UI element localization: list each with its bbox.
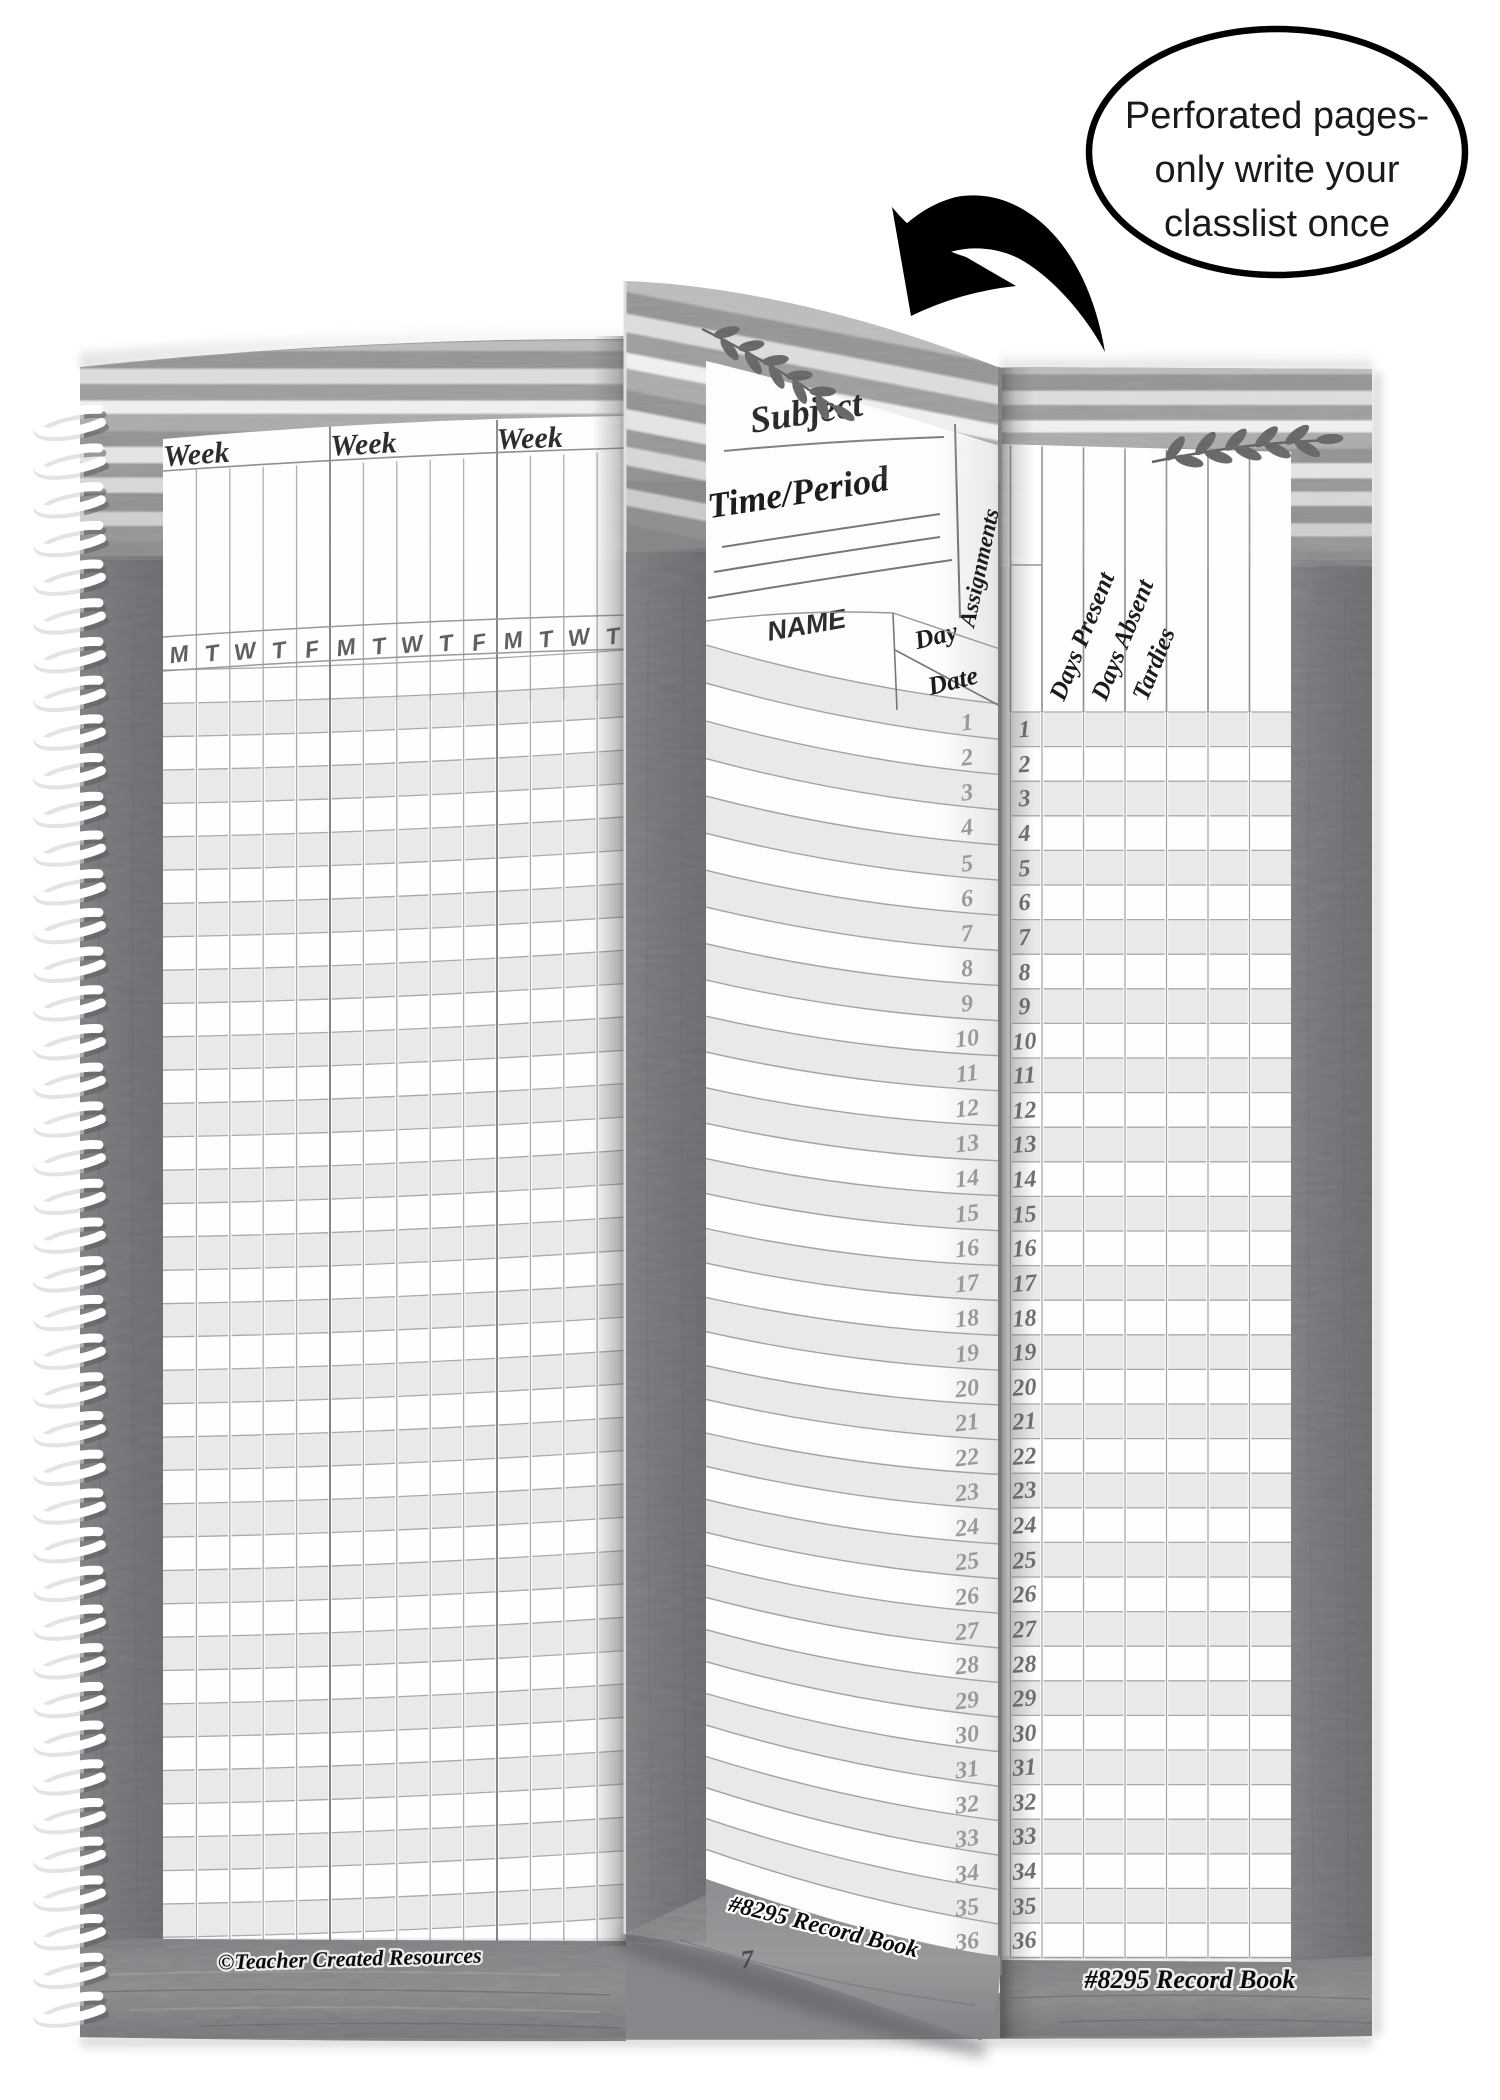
svg-text:20: 20 bbox=[953, 1375, 981, 1404]
svg-text:27: 27 bbox=[953, 1618, 982, 1647]
svg-text:33: 33 bbox=[953, 1825, 981, 1854]
svg-text:16: 16 bbox=[954, 1235, 981, 1264]
svg-text:25: 25 bbox=[953, 1548, 981, 1577]
svg-text:21: 21 bbox=[953, 1409, 981, 1438]
svg-text:29: 29 bbox=[953, 1687, 981, 1716]
svg-text:24: 24 bbox=[953, 1514, 981, 1543]
svg-text:23: 23 bbox=[953, 1479, 981, 1508]
svg-text:26: 26 bbox=[953, 1583, 981, 1612]
svg-text:17: 17 bbox=[954, 1270, 982, 1299]
svg-text:classlist once: classlist once bbox=[1164, 203, 1390, 245]
svg-text:10: 10 bbox=[954, 1025, 981, 1054]
svg-text:19: 19 bbox=[954, 1340, 981, 1369]
svg-text:12: 12 bbox=[954, 1095, 981, 1124]
svg-text:Perforated pages-: Perforated pages- bbox=[1125, 95, 1429, 137]
svg-text:28: 28 bbox=[953, 1652, 981, 1681]
svg-text:35: 35 bbox=[953, 1894, 981, 1923]
svg-text:32: 32 bbox=[953, 1791, 981, 1820]
svg-text:13: 13 bbox=[954, 1130, 981, 1159]
svg-text:14: 14 bbox=[954, 1165, 981, 1194]
svg-text:34: 34 bbox=[953, 1860, 981, 1889]
svg-text:30: 30 bbox=[953, 1721, 981, 1750]
svg-text:18: 18 bbox=[954, 1305, 981, 1334]
svg-text:only write your: only write your bbox=[1155, 149, 1400, 191]
svg-text:31: 31 bbox=[953, 1756, 981, 1785]
svg-text:22: 22 bbox=[953, 1444, 981, 1473]
svg-text:11: 11 bbox=[954, 1060, 980, 1089]
svg-text:15: 15 bbox=[954, 1200, 981, 1229]
